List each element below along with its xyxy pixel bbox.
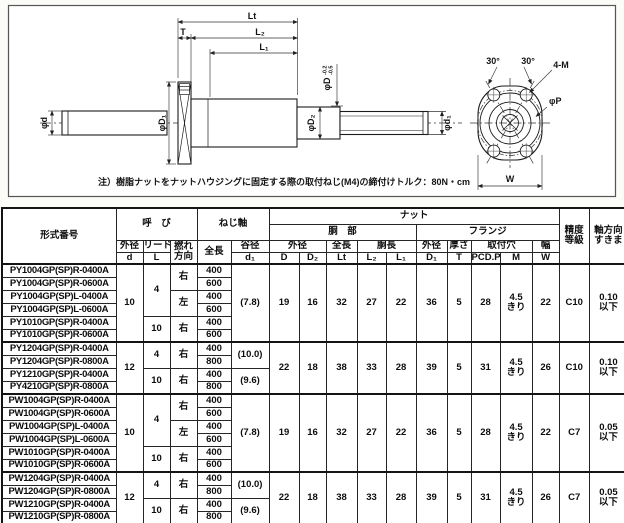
nut-od-cell: 19 xyxy=(269,264,299,342)
length-cell: 400 xyxy=(197,446,231,459)
length-cell: 400 xyxy=(197,316,231,329)
model-cell: PW1204GP(SP)R-0800A xyxy=(2,485,116,498)
header-shaft-length: 全長 xyxy=(197,240,231,264)
length-cell: 600 xyxy=(197,459,231,472)
nut-length-cell: 32 xyxy=(326,264,357,342)
flange-od-cell: 39 xyxy=(416,472,447,523)
model-cell: PY4210GP(SP)R-0800A xyxy=(2,381,116,394)
header-sym-d1: d₁ xyxy=(231,252,269,264)
header-sym-L: L xyxy=(143,252,170,264)
body-len1-cell: 22 xyxy=(386,264,416,342)
nut-od2-cell: 16 xyxy=(299,264,326,342)
model-cell: PY1204GP(SP)R-0400A xyxy=(2,342,116,355)
root-dia-cell: (7.8) xyxy=(231,394,269,472)
header-sym-D1: D₁ xyxy=(416,252,447,264)
header-flange-thickness: 厚さ xyxy=(447,240,471,252)
header-sym-M: M xyxy=(500,252,532,264)
body-len2-cell: 33 xyxy=(357,472,386,523)
length-cell: 400 xyxy=(197,290,231,303)
root-dia-cell: (9.6) xyxy=(231,498,269,523)
model-cell: PW1210GP(SP)R-0800A xyxy=(2,511,116,523)
dim-label-phi-d: φd xyxy=(39,117,49,129)
grade-cell: C10 xyxy=(559,342,589,394)
dir-cell: 左 xyxy=(170,290,197,316)
length-cell: 400 xyxy=(197,420,231,433)
model-cell: PY1204GP(SP)R-0800A xyxy=(2,355,116,368)
od-cell: 12 xyxy=(116,472,143,523)
dim-label-angle-right: 30° xyxy=(521,56,535,66)
root-dia-cell: (7.8) xyxy=(231,264,269,342)
header-sym-L1: L₁ xyxy=(386,252,416,264)
model-cell: PW1004GP(SP)L-0400A xyxy=(2,420,116,433)
lead-cell: 10 xyxy=(143,368,170,394)
header-screw-shaft: ねじ軸 xyxy=(197,208,269,240)
header-body-len: 胴長 xyxy=(357,240,416,252)
lead-cell: 10 xyxy=(143,316,170,342)
dir-cell: 右 xyxy=(170,316,197,342)
lead-cell: 4 xyxy=(143,342,170,368)
flange-width-cell: 26 xyxy=(532,472,559,523)
lead-cell: 4 xyxy=(143,394,170,446)
model-cell: PY1004GP(SP)L-0400A xyxy=(2,290,116,303)
lead-cell: 4 xyxy=(143,264,170,316)
dim-label-4M: 4-M xyxy=(553,60,569,70)
header-flange-od: 外径 xyxy=(416,240,447,252)
header-sym-T: T xyxy=(447,252,471,264)
header-sym-D2: D₂ xyxy=(299,252,326,264)
dir-cell: 右 xyxy=(170,498,197,523)
dim-label-phi-P: φP xyxy=(549,96,561,106)
table-row: PY1004GP(SP)R-0400A 10 4 右 400 (7.8) 19 … xyxy=(2,264,624,277)
model-cell: PW1010GP(SP)R-0600A xyxy=(2,459,116,472)
header-mounting-holes: 取付穴 xyxy=(471,240,532,252)
header-flange: フランジ xyxy=(416,224,559,240)
length-cell: 600 xyxy=(197,329,231,342)
header-nominal: 呼 び xyxy=(116,208,197,240)
length-cell: 400 xyxy=(197,342,231,355)
pcd-cell: 28 xyxy=(471,264,500,342)
root-dia-cell: (10.0) xyxy=(231,342,269,368)
lead-cell: 4 xyxy=(143,472,170,498)
model-cell: PW1004GP(SP)L-0600A xyxy=(2,433,116,446)
flange-od-cell: 36 xyxy=(416,264,447,342)
axial-play-cell: 0.10以下 xyxy=(589,342,624,394)
header-sym-PCD: PCD.P xyxy=(471,252,500,264)
model-cell: PY1210GP(SP)R-0400A xyxy=(2,368,116,381)
body-len1-cell: 28 xyxy=(386,472,416,523)
nut-od2-cell: 16 xyxy=(299,394,326,472)
nut-length-cell: 38 xyxy=(326,472,357,523)
flange-thickness-cell: 5 xyxy=(447,264,471,342)
flange-thickness-cell: 5 xyxy=(447,342,471,394)
nut-od-cell: 19 xyxy=(269,394,299,472)
length-cell: 600 xyxy=(197,277,231,290)
length-cell: 600 xyxy=(197,433,231,446)
table-row: PW1004GP(SP)R-0400A 10 4 右 400 (7.8) 19 … xyxy=(2,394,624,407)
dir-cell: 右 xyxy=(170,342,197,368)
header-nut: ナット xyxy=(269,208,559,224)
model-cell: PW1204GP(SP)R-0400A xyxy=(2,472,116,485)
nut-length-cell: 38 xyxy=(326,342,357,394)
grade-cell: C7 xyxy=(559,394,589,472)
length-cell: 600 xyxy=(197,407,231,420)
model-cell: PW1004GP(SP)R-0600A xyxy=(2,407,116,420)
grade-cell: C7 xyxy=(559,472,589,523)
dim-label-L2: L₂ xyxy=(255,27,265,37)
dir-cell: 右 xyxy=(170,264,197,290)
dir-cell: 右 xyxy=(170,446,197,472)
header-flange-width: 幅 xyxy=(532,240,559,252)
model-cell: PY1010GP(SP)R-0600A xyxy=(2,329,116,342)
od-cell: 12 xyxy=(116,342,143,394)
model-cell: PW1010GP(SP)R-0400A xyxy=(2,446,116,459)
dir-cell: 右 xyxy=(170,368,197,394)
length-cell: 400 xyxy=(197,498,231,511)
axial-play-cell: 0.05以下 xyxy=(589,394,624,472)
dim-label-W: W xyxy=(506,174,515,184)
header-body-od: 外径 xyxy=(269,240,326,252)
body-len2-cell: 27 xyxy=(357,264,386,342)
axial-play-cell: 0.05以下 xyxy=(589,472,624,523)
header-model: 形式番号 xyxy=(2,208,116,264)
nut-od-cell: 22 xyxy=(269,472,299,523)
model-cell: PW1210GP(SP)R-0400A xyxy=(2,498,116,511)
header-od: 外径 xyxy=(116,240,143,252)
nut-od2-cell: 18 xyxy=(299,342,326,394)
od-cell: 10 xyxy=(116,264,143,342)
grade-cell: C10 xyxy=(559,264,589,342)
header-root-dia: 谷径 xyxy=(231,240,269,252)
dim-label-angle-left: 30° xyxy=(486,56,500,66)
dim-label-T: T xyxy=(180,27,186,37)
flange-width-cell: 22 xyxy=(532,394,559,472)
header-lead: リード xyxy=(143,240,170,252)
header-axial-play: 軸方向すきま xyxy=(589,208,624,264)
nut-od2-cell: 18 xyxy=(299,472,326,523)
header-sym-d: d xyxy=(116,252,143,264)
nut-length-cell: 32 xyxy=(326,394,357,472)
model-cell: PY1004GP(SP)R-0600A xyxy=(2,277,116,290)
root-dia-cell: (9.6) xyxy=(231,368,269,394)
header-sym-L2: L₂ xyxy=(357,252,386,264)
length-cell: 400 xyxy=(197,264,231,277)
length-cell: 400 xyxy=(197,394,231,407)
axial-play-cell: 0.10以下 xyxy=(589,264,624,342)
dim-label-Lt: Lt xyxy=(248,11,257,21)
header-sym-W: W xyxy=(532,252,559,264)
mount-hole-cell: 4.5きり xyxy=(500,342,532,394)
length-cell: 800 xyxy=(197,485,231,498)
body-len2-cell: 27 xyxy=(357,394,386,472)
nut-od-cell: 22 xyxy=(269,342,299,394)
body-len2-cell: 33 xyxy=(357,342,386,394)
root-dia-cell: (10.0) xyxy=(231,472,269,498)
body-len1-cell: 22 xyxy=(386,394,416,472)
dim-label-phi-d1: φd₁ xyxy=(442,115,452,131)
header-twist-direction: 撚れ方向 xyxy=(170,240,197,264)
length-cell: 400 xyxy=(197,472,231,485)
model-cell: PW1004GP(SP)R-0400A xyxy=(2,394,116,407)
header-sym-D: D xyxy=(269,252,299,264)
pcd-cell: 28 xyxy=(471,394,500,472)
dim-label-L1: L₁ xyxy=(259,42,268,52)
flange-width-cell: 26 xyxy=(532,342,559,394)
table-row: PY1204GP(SP)R-0400A 12 4 右 400 (10.0) 22… xyxy=(2,342,624,355)
svg-text:-0.5: -0.5 xyxy=(329,66,335,75)
dir-cell: 左 xyxy=(170,420,197,446)
length-cell: 400 xyxy=(197,368,231,381)
flange-od-cell: 39 xyxy=(416,342,447,394)
length-cell: 800 xyxy=(197,381,231,394)
catalog-page: Lt T L₂ L₁ φd φD₁ φD₂ φd₁ φD -0.2 -0.5 xyxy=(0,0,624,523)
header-nut-body: 胴 部 xyxy=(269,224,416,240)
flange-width-cell: 22 xyxy=(532,264,559,342)
pcd-cell: 31 xyxy=(471,472,500,523)
mount-hole-cell: 4.5きり xyxy=(500,472,532,523)
od-cell: 10 xyxy=(116,394,143,472)
table-row: PW1204GP(SP)R-0400A 12 4 右 400 (10.0) 22… xyxy=(2,472,624,485)
flange-thickness-cell: 5 xyxy=(447,472,471,523)
flange-od-cell: 36 xyxy=(416,394,447,472)
spec-table: 形式番号 呼 び ねじ軸 ナット 精度等級 軸方向すきま 胴 部 フランジ 外径… xyxy=(1,207,624,523)
dim-label-phi-D2: φD₂ xyxy=(306,115,316,132)
body-len1-cell: 28 xyxy=(386,342,416,394)
lead-cell: 10 xyxy=(143,498,170,523)
header-sym-Lt: Lt xyxy=(326,252,357,264)
dim-label-phi-D1: φD₁ xyxy=(157,114,167,131)
model-cell: PY1010GP(SP)R-0400A xyxy=(2,316,116,329)
model-cell: PY1004GP(SP)L-0600A xyxy=(2,303,116,316)
model-cell: PY1004GP(SP)R-0400A xyxy=(2,264,116,277)
lead-cell: 10 xyxy=(143,446,170,472)
mount-hole-cell: 4.5きり xyxy=(500,394,532,472)
length-cell: 600 xyxy=(197,303,231,316)
torque-note: 注）樹脂ナットをナットハウジングに固定する際の取付ねじ(M4)の締付けトルク：8… xyxy=(98,176,470,187)
dir-cell: 右 xyxy=(170,472,197,498)
mount-hole-cell: 4.5きり xyxy=(500,264,532,342)
header-accuracy-grade: 精度等級 xyxy=(559,208,589,264)
flange-thickness-cell: 5 xyxy=(447,394,471,472)
pcd-cell: 31 xyxy=(471,342,500,394)
ball-screw-drawing: Lt T L₂ L₁ φd φD₁ φD₂ φd₁ φD -0.2 -0.5 xyxy=(0,0,624,207)
dir-cell: 右 xyxy=(170,394,197,420)
header-body-length: 全長 xyxy=(326,240,357,252)
length-cell: 800 xyxy=(197,355,231,368)
length-cell: 800 xyxy=(197,511,231,523)
svg-text:φD: φD xyxy=(322,77,332,90)
